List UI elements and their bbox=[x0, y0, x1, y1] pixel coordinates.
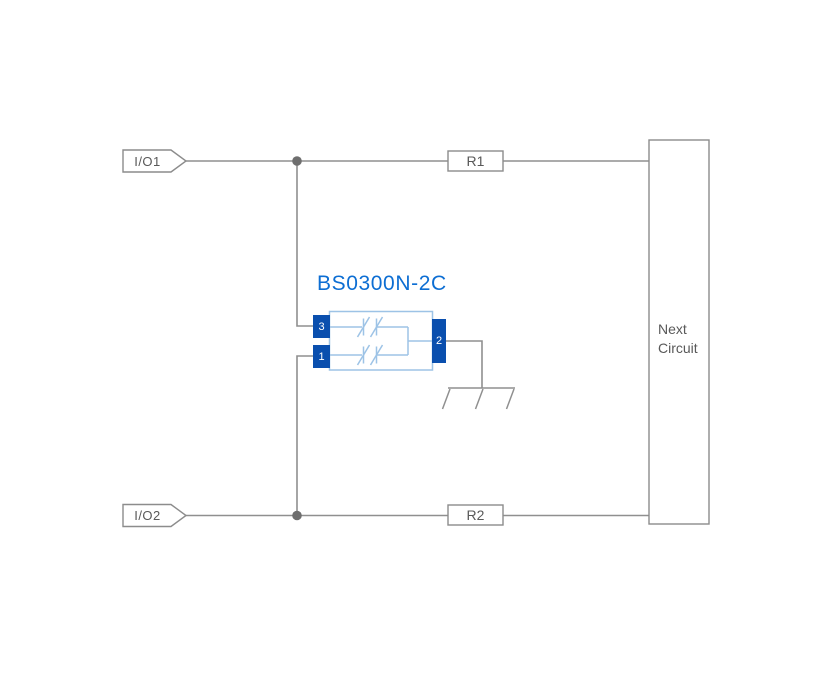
next-circuit-line2: Circuit bbox=[658, 339, 698, 358]
pin-1-block: 1 bbox=[313, 345, 330, 368]
junction-dot-icon bbox=[292, 156, 302, 166]
schematic-drawing bbox=[0, 0, 832, 675]
wire-pin1-to-junction bbox=[297, 356, 313, 516]
pin-2-block: 2 bbox=[432, 319, 446, 363]
next-circuit-line1: Next bbox=[658, 320, 698, 339]
wire-pin2-to-ground bbox=[446, 341, 482, 388]
resistor-r2-label: R2 bbox=[448, 505, 503, 525]
io2-port-label: I/O2 bbox=[123, 504, 172, 526]
ground-icon bbox=[443, 388, 516, 409]
schematic-canvas: BS0300N-2C 3 1 2 I/O1 I/O2 R1 R2 Next Ci… bbox=[0, 0, 832, 675]
io1-port-label: I/O1 bbox=[123, 150, 172, 172]
wire-junction-to-pin3 bbox=[297, 161, 313, 326]
resistor-r1-label: R1 bbox=[448, 151, 503, 171]
component-title: BS0300N-2C bbox=[317, 272, 447, 296]
next-circuit-label: Next Circuit bbox=[658, 320, 698, 358]
pin-3-block: 3 bbox=[313, 315, 330, 338]
junction-dot-icon bbox=[292, 511, 302, 521]
